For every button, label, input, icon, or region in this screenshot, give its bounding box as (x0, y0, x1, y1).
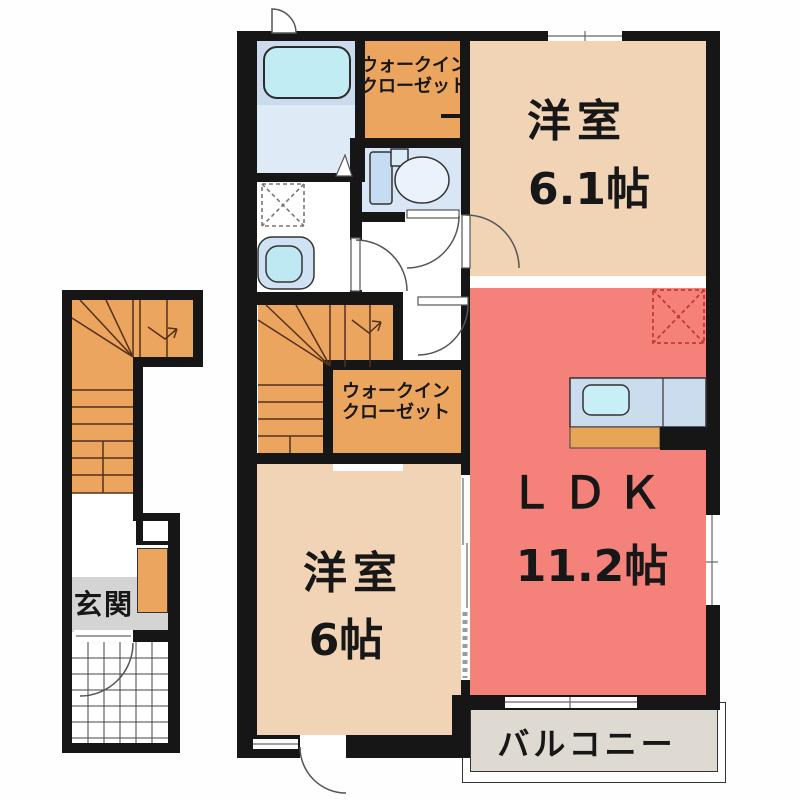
entrance-label: 玄関 (74, 583, 134, 623)
interior-staircase (258, 305, 393, 367)
window (706, 515, 718, 605)
balcony-label: バルコニー (497, 719, 676, 765)
window (548, 31, 622, 41)
wall-segment (461, 288, 470, 475)
wall-segment (133, 630, 168, 642)
sliding-door-track (461, 610, 470, 680)
floor-plan: ウォークイン クローゼット 洋室 6.1帖 ウォークイン クローゼット ＬＤＫ … (0, 0, 800, 800)
wall-segment (452, 695, 470, 758)
wall-segment (62, 743, 180, 753)
wall-segment (350, 138, 470, 148)
washroom (257, 182, 350, 292)
stair-landing (72, 493, 133, 577)
wall-segment (237, 31, 720, 41)
ldk-size: 11.2帖 (516, 530, 669, 594)
bathroom-top-door (272, 9, 296, 33)
window (505, 697, 637, 708)
exterior-staircase-column (72, 300, 133, 493)
hallway-corridor (403, 292, 461, 360)
bedroom1-door-leaf (462, 215, 470, 268)
door-opening (300, 735, 346, 758)
wall-segment (350, 148, 362, 240)
wall-segment (355, 212, 405, 222)
door-opening (333, 464, 403, 471)
wall-segment (461, 680, 470, 695)
bathroom (257, 41, 355, 105)
entrance-door-sill (74, 630, 133, 642)
wall-segment (461, 148, 470, 215)
wall-window-notch (143, 521, 168, 541)
wall-segment (62, 290, 203, 300)
wall-segment (257, 173, 355, 182)
walk-in-closet-2-label: ウォークイン クローゼット (342, 381, 450, 423)
wall-segment (461, 268, 470, 288)
wall-segment (706, 41, 720, 515)
window (253, 739, 298, 749)
washroom-door-leaf (351, 238, 360, 291)
ldk-name: ＬＤＫ (509, 457, 671, 521)
wall-segment (62, 290, 72, 753)
wall-segment (323, 370, 333, 463)
western-room-1-name: 洋室 (527, 85, 627, 149)
wall-segment (133, 367, 143, 521)
entrance-porch-tiles (72, 642, 168, 743)
hallway (362, 212, 461, 292)
western-room-1-size: 6.1帖 (528, 153, 650, 217)
wall-segment (237, 453, 470, 464)
wall-segment (323, 360, 470, 370)
western-room-2-size: 6帖 (309, 604, 384, 668)
wall-segment (168, 545, 180, 753)
wall-segment (237, 292, 403, 305)
shoe-cabinet (137, 548, 168, 613)
bathroom-floor (257, 105, 355, 173)
toilet-room (362, 148, 461, 212)
western-room-2-name: 洋室 (303, 537, 403, 601)
wall-segment (133, 357, 203, 367)
interior-staircase-lower (258, 367, 323, 453)
wall-segment (237, 31, 257, 758)
sliding-door (461, 475, 470, 610)
walk-in-closet-1-label: ウォークイン クローゼット (360, 55, 468, 97)
